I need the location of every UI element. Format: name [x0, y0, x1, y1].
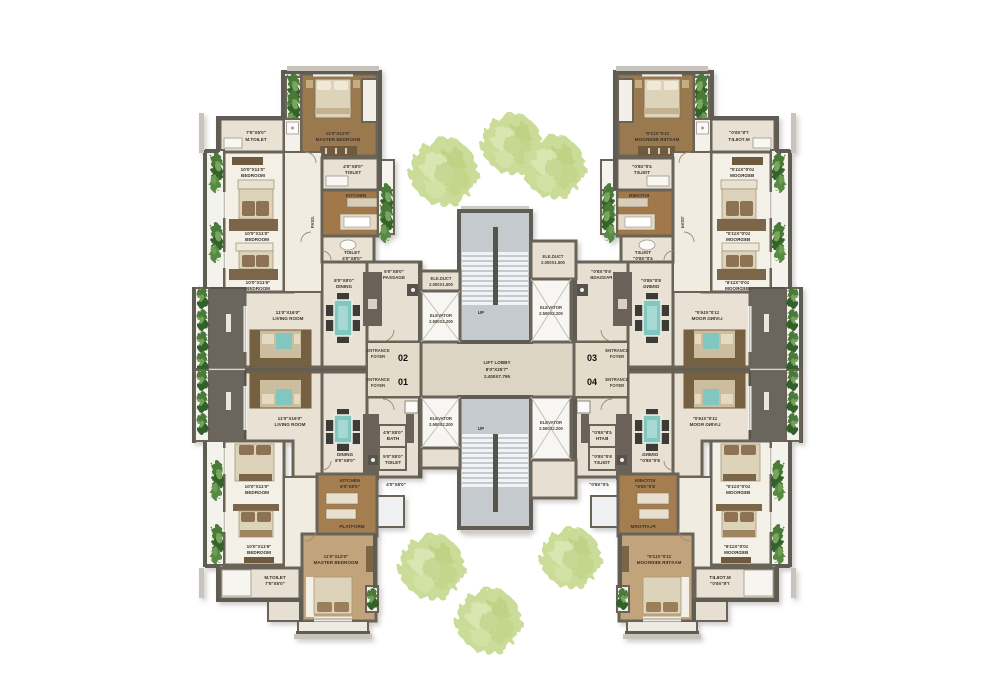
svg-text:TOILET: TOILET	[345, 170, 361, 175]
svg-text:M.TOILET: M.TOILET	[264, 575, 286, 580]
svg-text:ENTRANCE: ENTRANCE	[366, 348, 389, 353]
svg-text:8'0"X8'0": 8'0"X8'0"	[334, 278, 354, 283]
svg-text:FOYER: FOYER	[371, 383, 385, 388]
svg-text:M.TOILET: M.TOILET	[245, 137, 267, 142]
svg-text:PASS.: PASS.	[310, 216, 315, 228]
svg-text:4'0"X8'0": 4'0"X8'0"	[386, 482, 406, 487]
svg-text:MASTER BEDROOM: MASTER BEDROOM	[314, 560, 359, 565]
svg-text:BEDROOM: BEDROOM	[246, 286, 270, 291]
svg-text:02: 02	[398, 353, 408, 363]
svg-text:PLATFORM: PLATFORM	[339, 524, 364, 529]
svg-text:ELEVATOR: ELEVATOR	[540, 420, 562, 425]
svg-text:BATH: BATH	[387, 436, 400, 441]
svg-text:5'0"X8'0": 5'0"X8'0"	[384, 269, 404, 274]
svg-text:10'0"X11'6": 10'0"X11'6"	[246, 280, 271, 285]
svg-text:BEDROOM: BEDROOM	[241, 173, 265, 178]
svg-text:LIVING ROOM: LIVING ROOM	[273, 316, 304, 321]
svg-text:DINING: DINING	[336, 284, 353, 289]
svg-text:ELEVATOR: ELEVATOR	[430, 313, 452, 318]
svg-text:03: 03	[587, 353, 597, 363]
svg-text:04: 04	[587, 377, 597, 387]
svg-text:MASTER BEDROOM: MASTER BEDROOM	[316, 137, 361, 142]
svg-text:ELEVATOR: ELEVATOR	[540, 305, 562, 310]
svg-text:UP: UP	[478, 426, 484, 431]
svg-text:10'0"X11'0": 10'0"X11'0"	[245, 484, 270, 489]
svg-text:FOYER: FOYER	[610, 354, 624, 359]
svg-text:11'0"X12'0": 11'0"X12'0"	[326, 131, 351, 136]
svg-text:10'0"X11'0": 10'0"X11'0"	[241, 167, 266, 172]
svg-text:11'0"X16'0": 11'0"X16'0"	[276, 310, 301, 315]
svg-text:UP: UP	[478, 310, 484, 315]
svg-text:10'0"X11'6": 10'0"X11'6"	[247, 544, 272, 549]
svg-text:ELE.DUCT: ELE.DUCT	[431, 276, 452, 281]
svg-text:11'0"X16'0": 11'0"X16'0"	[278, 416, 303, 421]
svg-text:8'0"X8'0": 8'0"X8'0"	[335, 458, 355, 463]
svg-text:BEDROOM: BEDROOM	[247, 550, 271, 555]
svg-text:PASSAGE: PASSAGE	[383, 275, 405, 280]
svg-text:FOYER: FOYER	[610, 383, 624, 388]
svg-text:4'0"X8'0": 4'0"X8'0"	[342, 256, 362, 261]
svg-text:8'0"X25'7": 8'0"X25'7"	[486, 367, 508, 372]
svg-text:7'5"X5'0": 7'5"X5'0"	[265, 581, 285, 586]
svg-text:ELE.DUCT: ELE.DUCT	[543, 254, 564, 259]
svg-text:2.500X2.200: 2.500X2.200	[539, 426, 563, 431]
svg-text:8'0"X8'6": 8'0"X8'6"	[340, 484, 360, 489]
svg-text:7'5"X5'0": 7'5"X5'0"	[246, 130, 266, 135]
svg-text:2.400X7.795: 2.400X7.795	[484, 374, 511, 379]
svg-text:LIVING ROOM: LIVING ROOM	[275, 422, 306, 427]
svg-text:ELEVATOR: ELEVATOR	[430, 416, 452, 421]
svg-text:TOILET: TOILET	[385, 460, 401, 465]
svg-text:2.500X2.200: 2.500X2.200	[429, 422, 453, 427]
svg-text:5'0"X8'0": 5'0"X8'0"	[383, 454, 403, 459]
svg-text:ENTRANCE: ENTRANCE	[605, 348, 628, 353]
svg-text:ENTRANCE: ENTRANCE	[366, 377, 389, 382]
svg-text:4'0"X8'0": 4'0"X8'0"	[343, 164, 363, 169]
svg-text:BEDROOM: BEDROOM	[245, 237, 269, 242]
svg-text:10'0"X11'0": 10'0"X11'0"	[245, 231, 270, 236]
svg-text:4'5"X8'0": 4'5"X8'0"	[383, 430, 403, 435]
svg-text:BEDROOM: BEDROOM	[245, 490, 269, 495]
svg-text:2.000X1.500: 2.000X1.500	[541, 260, 565, 265]
svg-text:KITCHEN: KITCHEN	[340, 478, 361, 483]
svg-text:2.500X2.200: 2.500X2.200	[429, 319, 453, 324]
svg-text:ENTRANCE: ENTRANCE	[605, 377, 628, 382]
svg-text:KITCHEN: KITCHEN	[346, 193, 367, 198]
svg-text:DINING: DINING	[337, 452, 354, 457]
svg-text:FOYER: FOYER	[371, 354, 385, 359]
svg-text:2.500X2.200: 2.500X2.200	[539, 311, 563, 316]
svg-text:LIFT LOBBY: LIFT LOBBY	[483, 360, 510, 365]
svg-text:TOILET: TOILET	[344, 250, 360, 255]
svg-text:2.000X1.500: 2.000X1.500	[429, 282, 453, 287]
svg-text:01: 01	[398, 377, 408, 387]
svg-text:11'0"X12'0": 11'0"X12'0"	[324, 554, 349, 559]
